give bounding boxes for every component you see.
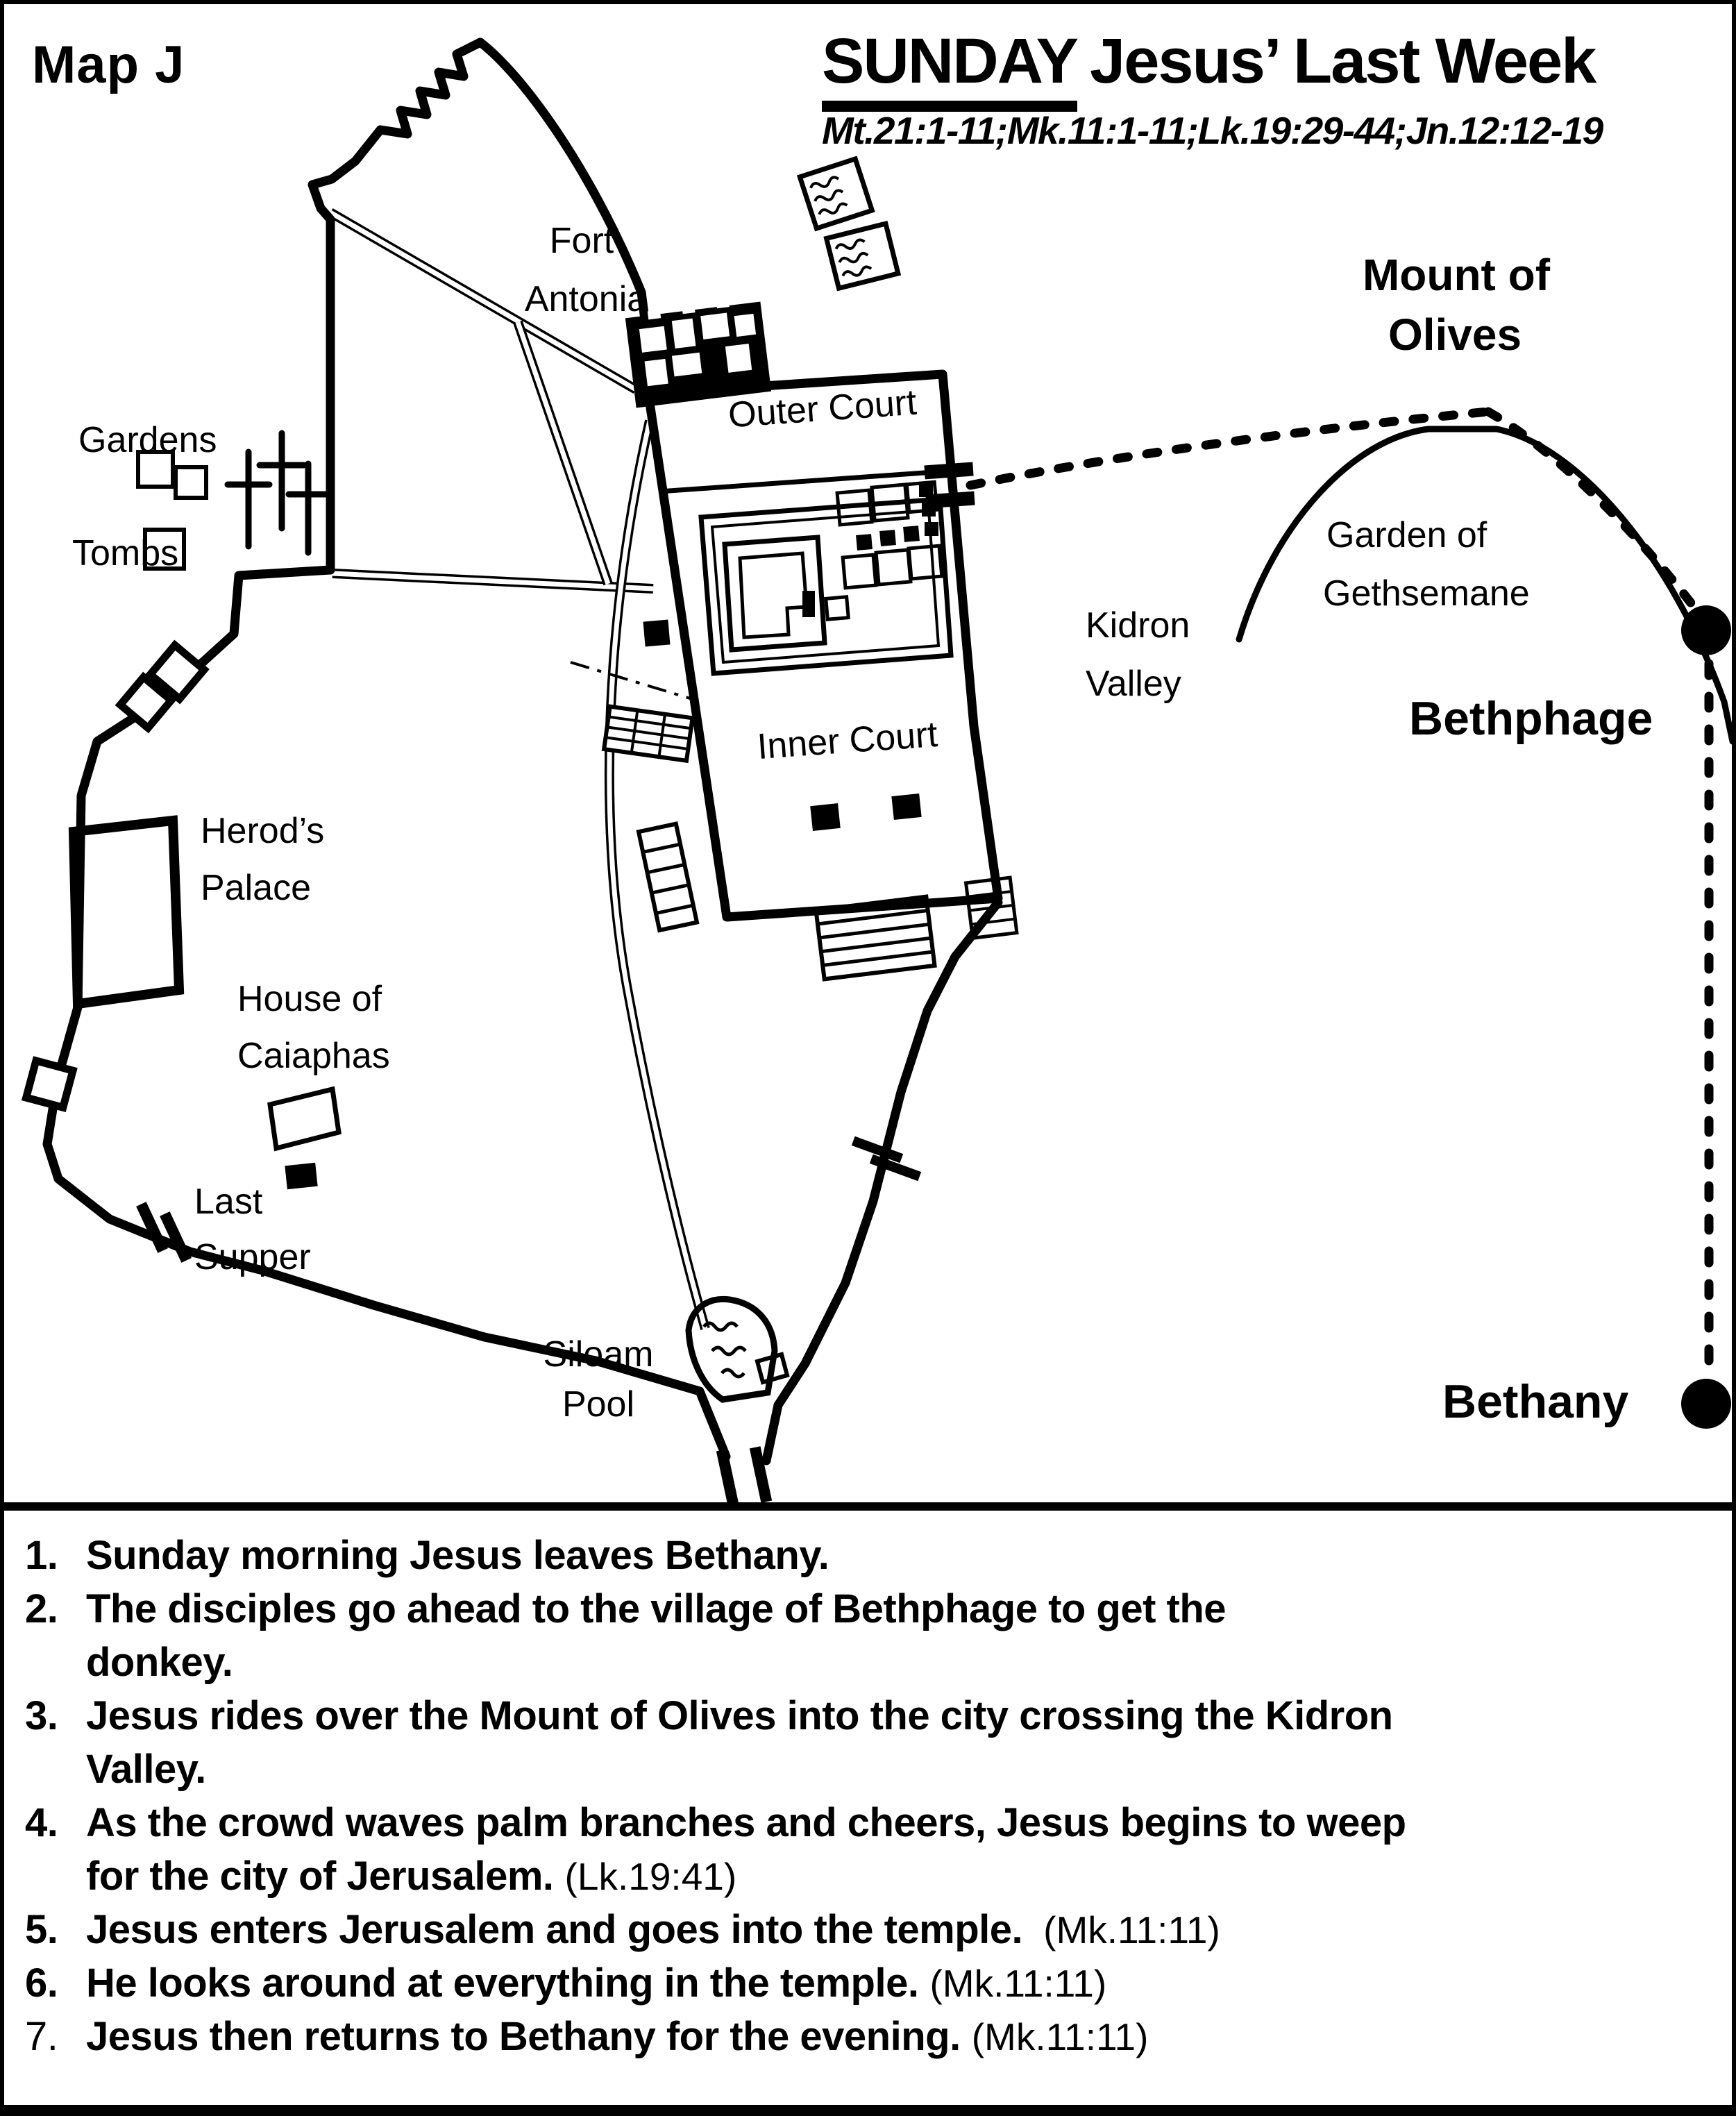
svg-text:Caiaphas: Caiaphas: [237, 1036, 390, 1076]
scripture-refs: Mt.21:1-11;Mk.11:1-11;Lk.19:29-44;Jn.12:…: [822, 108, 1603, 153]
tombs-label: Tombs: [72, 533, 178, 573]
gethsemane-label: Garden of: [1326, 515, 1488, 555]
bethphage-dot: [1681, 605, 1731, 655]
tomb-crosses: [228, 433, 328, 553]
page-title: SUNDAYJesus’ Last Week: [822, 25, 1595, 112]
event-5: 5.Jesus enters Jerusalem and goes into t…: [4, 1903, 1732, 1956]
journey-route: [970, 412, 1709, 1379]
event-3: 3.Jesus rides over the Mount of Olives i…: [4, 1689, 1732, 1743]
bethesda-pools: [800, 159, 898, 288]
svg-text:Olives: Olives: [1388, 310, 1522, 360]
event-2-cont: donkey.: [4, 1636, 1732, 1689]
event-3-cont: Valley.: [4, 1743, 1732, 1796]
ramp: [604, 707, 692, 761]
siloam-pool-label: Siloam: [543, 1334, 654, 1375]
svg-text:Valley: Valley: [1086, 664, 1181, 704]
bethany-label: Bethany: [1442, 1375, 1628, 1428]
svg-text:Pool: Pool: [562, 1384, 634, 1425]
event-4-cont: for the city of Jerusalem.(Lk.19:41): [4, 1849, 1732, 1903]
west-structure: [639, 824, 697, 930]
herods-palace-label: Herod’s: [201, 811, 324, 851]
caiaphas-house-shape: [270, 1089, 339, 1148]
svg-text:Gethsemane: Gethsemane: [1323, 573, 1530, 614]
bethphage-label: Bethphage: [1409, 692, 1653, 745]
events-list: 1.Sunday morning Jesus leaves Bethany. 2…: [4, 1529, 1732, 2063]
jerusalem-map: Fort Antonia Outer Court Inner Court Gar…: [4, 4, 1736, 1502]
last-supper-label: Last: [194, 1182, 263, 1222]
event-2: 2.The disciples go ahead to the village …: [4, 1582, 1732, 1636]
svg-text:Antonia: Antonia: [525, 279, 647, 319]
aqueduct-line: [571, 662, 704, 703]
last-supper-marker: [285, 1163, 317, 1189]
herods-palace-shape: [74, 821, 179, 1004]
svg-text:Supper: Supper: [194, 1237, 311, 1277]
title-day: SUNDAY: [822, 25, 1077, 112]
fort-antonia-label: Fort: [550, 221, 614, 261]
event-6: 6.He looks around at everything in the t…: [4, 1956, 1732, 2010]
bethany-dot: [1681, 1379, 1731, 1429]
event-7: 7.Jesus then returns to Bethany for the …: [4, 2010, 1732, 2063]
event-4: 4.As the crowd waves palm branches and c…: [4, 1796, 1732, 1849]
event-1: 1.Sunday morning Jesus leaves Bethany.: [4, 1529, 1732, 1582]
map-id-label: Map J: [32, 35, 185, 95]
mount-of-olives-label: Mount of: [1363, 250, 1551, 300]
house-of-caiaphas-label: House of: [237, 979, 382, 1019]
title-rest: Jesus’ Last Week: [1090, 26, 1595, 96]
svg-text:Palace: Palace: [201, 868, 311, 908]
kidron-valley-label: Kidron: [1086, 605, 1190, 646]
map-page: Fort Antonia Outer Court Inner Court Gar…: [0, 0, 1736, 2116]
gardens-label: Gardens: [78, 420, 217, 460]
map-list-divider: [4, 1502, 1732, 1511]
